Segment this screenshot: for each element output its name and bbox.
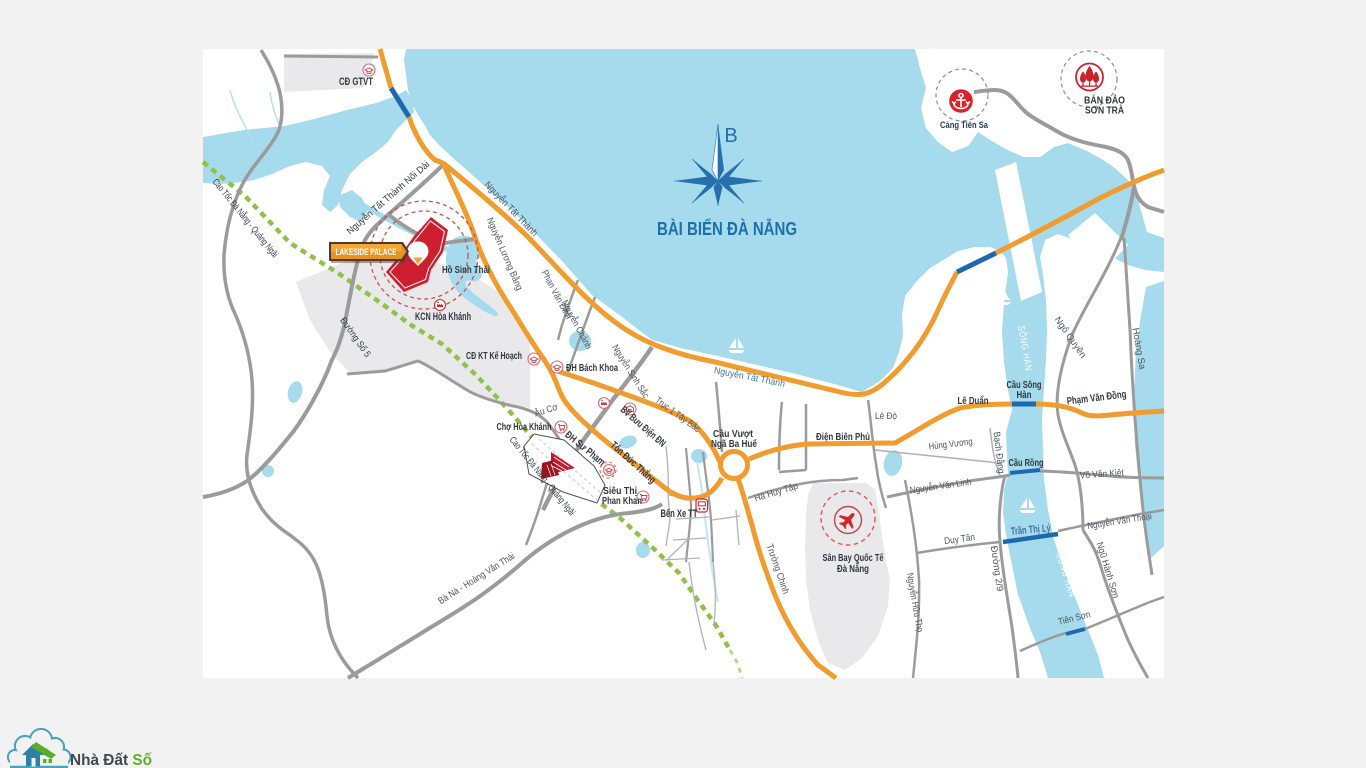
svg-text:CĐ GTVT: CĐ GTVT — [339, 76, 373, 88]
svg-text:Chợ Hòa Khánh: Chợ Hòa Khánh — [497, 421, 552, 433]
svg-text:ĐH Bách Khoa: ĐH Bách Khoa — [566, 362, 618, 374]
svg-text:Cảng Tiên Sa: Cảng Tiên Sa — [940, 120, 989, 130]
svg-text:SƠN TRÀ: SƠN TRÀ — [1085, 104, 1124, 117]
svg-text:BÀI BIỂN ĐÀ NẴNG: BÀI BIỂN ĐÀ NẴNG — [657, 218, 797, 239]
svg-text:Cầu Rồng: Cầu Rồng — [1009, 457, 1044, 469]
svg-text:Phan Khan: Phan Khan — [602, 495, 642, 507]
svg-text:Nhà Đất Số: Nhà Đất Số — [70, 752, 153, 768]
svg-text:LAKESIDE PALACE: LAKESIDE PALACE — [336, 247, 397, 258]
svg-text:KCN Hòa Khánh: KCN Hòa Khánh — [415, 311, 471, 323]
svg-text:Ngã Ba Huế: Ngã Ba Huế — [711, 438, 757, 450]
svg-text:Điện Biên Phủ: Điện Biên Phủ — [816, 431, 870, 443]
svg-text:Đà Nẵng: Đà Nẵng — [837, 562, 869, 575]
svg-text:CĐ KT Kế Hoạch: CĐ KT Kế Hoạch — [466, 350, 522, 362]
svg-text:Hồ Sinh Thái: Hồ Sinh Thái — [442, 264, 490, 276]
svg-text:Hàn: Hàn — [1017, 389, 1032, 401]
svg-text:B: B — [724, 125, 737, 147]
svg-text:Bến Xe TT: Bến Xe TT — [661, 508, 698, 520]
svg-text:Lê Duẩn: Lê Duẩn — [958, 395, 989, 407]
svg-text:Lê Độ: Lê Độ — [875, 411, 897, 422]
